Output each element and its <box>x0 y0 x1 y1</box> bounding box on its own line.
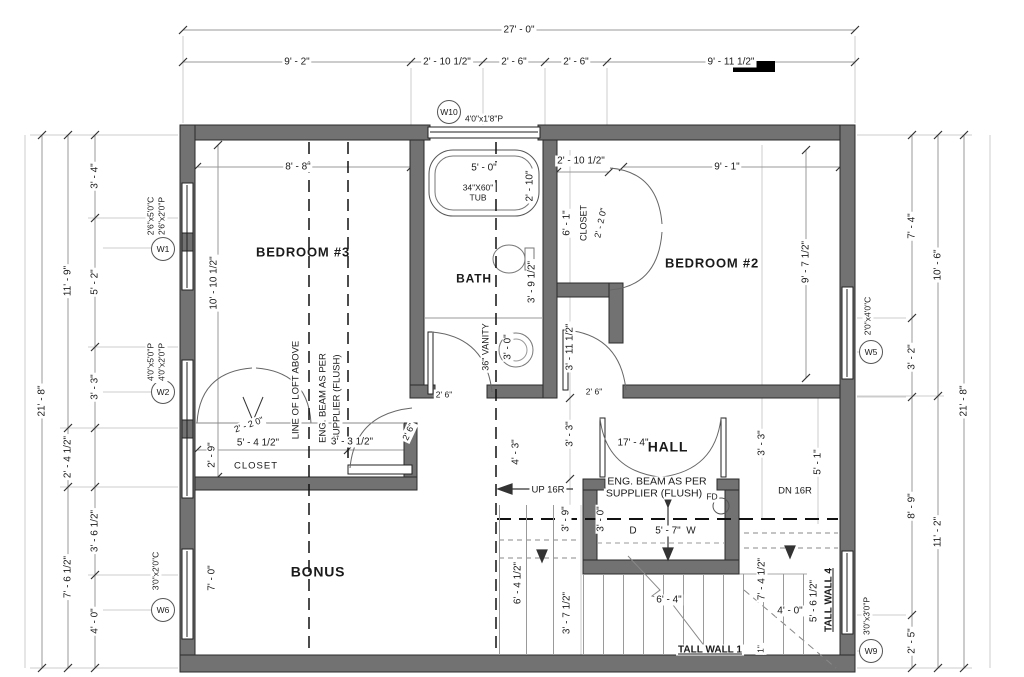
closet3-width-dim: 5' - 4 1/2" <box>235 438 281 449</box>
dn-arrow-head <box>785 546 795 558</box>
window-w2-size-1: 4'0"x5'0"P <box>146 341 157 383</box>
closet2-label: CLOSET <box>579 203 590 243</box>
bedroom3-width-dim: 8' - 8" <box>283 162 312 173</box>
closet3-label: CLOSET <box>232 461 280 472</box>
dim-top-s1: 9' - 2" <box>282 57 311 68</box>
dim-left-i2: 5' - 2" <box>90 267 101 296</box>
hall-door-leaf-left <box>600 418 605 477</box>
window-w2-size-2: 4'0"x2'0"P <box>157 341 168 383</box>
wall-closet2-pillar <box>609 283 623 343</box>
bedroom3-door-leaf <box>348 465 412 474</box>
hall-door-leaf-right <box>721 418 726 477</box>
beam-note-line1: ENG. BEAM AS PER <box>318 351 329 445</box>
wall-laundry-bottom <box>583 560 739 574</box>
window-w9-size: 3'0"x3'0"P <box>862 595 873 637</box>
tub-width-dim: 5' - 0" <box>469 163 498 174</box>
window-tag-w6: W6 <box>151 598 175 622</box>
bedroom2-door-size: 2' 6" <box>584 387 604 398</box>
closet2-depth-dim: 6' - 1" <box>562 208 573 237</box>
bonus-dim: 7' - 0" <box>207 563 218 592</box>
dim-left-i1: 3' - 4" <box>90 161 101 190</box>
closet3-door-arc-left <box>197 368 252 423</box>
dim-left-i4: 3' - 6 1/2" <box>90 508 101 554</box>
window-tag-w9: W9 <box>859 639 883 663</box>
hall-dim-5: 5' - 1" <box>813 447 824 476</box>
window-w5-size: 2'0"x4'0"C <box>863 295 874 338</box>
floor-drain-label: FD <box>704 492 719 503</box>
wall-top-left <box>180 125 430 140</box>
closet3-depth-dim: 2' - 9" <box>207 440 218 469</box>
dim-left-m1: 11' - 9" <box>63 264 74 298</box>
wall-bed3-bath <box>410 140 424 398</box>
stair-dim-5: 4' - 0" <box>775 606 804 617</box>
dim-right-i3: 8' - 9" <box>907 491 918 520</box>
hall-dim-2: 3' - 3" <box>565 419 576 448</box>
stair-treads-main <box>583 574 807 655</box>
stair-dim-4: 7' - 4 1/2" <box>757 556 768 602</box>
sink-dim: 3' - 0" <box>503 332 514 361</box>
closet3-right-dim: 3' - 3 1/2" <box>329 437 375 448</box>
floor-plan-sheet: 27' - 0" 9' - 2" 2' - 10 1/2" 2' - 6" 2'… <box>0 0 1024 677</box>
tub-label: TUB <box>468 193 489 204</box>
dim-left-total: 21' - 8" <box>37 383 48 418</box>
hall-dim-4: 3' - 3" <box>757 428 768 457</box>
dryer-label: D <box>627 526 638 537</box>
bath-door-leaf <box>428 332 433 394</box>
dim-right-m2: 11' - 2" <box>933 515 944 549</box>
toilet-dim: 3' - 9 1/2" <box>527 259 538 305</box>
dim-top-overall: 27' - 0" <box>501 25 536 36</box>
dim-left-i5: 4' - 0" <box>90 606 101 635</box>
window-tag-w5: W5 <box>859 340 883 364</box>
tall-wall-4-label: TALL WALL 4 <box>824 566 835 634</box>
bedroom2-width-dim: 9' - 1" <box>712 162 741 173</box>
bedroom2-depth-dim: 9' - 7 1/2" <box>801 239 812 285</box>
hall-dim-3: 3' - 11 1/2" <box>565 322 576 373</box>
stair-dim-one: 1" <box>756 643 767 655</box>
dim-right-i1: 7' - 4" <box>907 211 918 240</box>
dim-right-total: 21' - 8" <box>959 383 970 418</box>
window-w1-size-2: 2'6"x2'0"P <box>157 195 168 237</box>
dim-top-s5: 9' - 11 1/2" <box>706 57 757 68</box>
dim-left-m3: 7' - 6 1/2" <box>63 554 74 600</box>
up-arrow-head <box>498 484 512 494</box>
closet2-bifold-arc-top <box>610 168 662 224</box>
laundry-beam-note-2: SUPPLIER (FLUSH) <box>604 489 704 500</box>
dim-top-s2: 2' - 10 1/2" <box>421 57 473 68</box>
tub-depth-dim: 2' - 10" <box>525 168 536 203</box>
closet2-bifold-arc-bottom <box>610 232 662 290</box>
bedroom2-label: BEDROOM #2 <box>663 258 761 269</box>
dim-left-i3: 3' - 3" <box>90 372 101 401</box>
window-tag-w2: W2 <box>151 380 175 404</box>
dim-top-s3: 2' - 6" <box>499 57 528 68</box>
bath-label: BATH <box>454 274 494 285</box>
wall-bottom <box>180 655 855 672</box>
closet2-width-dim: 2' - 10 1/2" <box>555 156 607 167</box>
bonus-label: BONUS <box>289 567 348 578</box>
toilet-bowl <box>493 245 525 273</box>
wall-bed2-bottom <box>623 385 840 398</box>
window-w6-size: 3'0"x2'0"C <box>151 550 162 593</box>
wall-laundry-jamb-right <box>717 479 739 490</box>
loft-line-note: LINE OF LOFT ABOVE <box>291 339 302 442</box>
washer-label: W <box>684 526 697 537</box>
wall-laundry-jamb-left <box>583 479 605 490</box>
door-arcs <box>195 168 721 477</box>
vanity-note: 36" VANITY <box>481 321 492 373</box>
beam-note-line2: SUPPLIER (FLUSH) <box>332 352 343 443</box>
dn-run-label: DN 16R <box>776 486 814 497</box>
up-run-label: UP 16R <box>529 485 566 496</box>
dim-right-i4: 2' - 5" <box>907 626 918 655</box>
hall-label: HALL <box>646 442 691 453</box>
window-w10-size: 4'0"x1'8"P <box>463 114 505 125</box>
stair-dim-6: 5' - 6 1/2" <box>809 578 820 624</box>
stair-dim-1: 6' - 4 1/2" <box>513 560 524 606</box>
stair-dim-2: 3' - 7 1/2" <box>562 590 573 636</box>
wall-bath-closet <box>543 140 557 398</box>
laundry-beam-note-1: ENG. BEAM AS PER <box>605 477 708 488</box>
dim-top-s4: 2' - 6" <box>561 57 590 68</box>
stair-dim-3: 6' - 4" <box>654 595 683 606</box>
hall-dim-1: 4' - 3" <box>511 437 522 466</box>
dim-right-m1: 10' - 6" <box>933 247 944 282</box>
window-w1-size-1: 2'6"x5'0"C <box>146 195 157 238</box>
dim-right-i2: 3' - 2" <box>907 342 918 371</box>
laundry-arrow-head-2 <box>663 548 673 560</box>
window-tag-w1: W1 <box>151 237 175 261</box>
wall-top-right <box>538 125 855 140</box>
closet3-door-arc-right <box>256 368 311 423</box>
tall-wall-1-label: TALL WALL 1 <box>676 645 744 656</box>
bedroom3-depth-dim: 10' - 10 1/2" <box>209 254 220 311</box>
wall-closet3-bottom <box>195 477 417 490</box>
window-tag-w10: W10 <box>437 100 461 124</box>
laundry-width-dim: 5' - 7" <box>653 526 682 537</box>
dim-left-m2: 2' - 4 1/2" <box>63 434 74 480</box>
hall-dim-6: 3' - 9" <box>561 504 572 533</box>
bath-door-size: 2' 6" <box>434 390 454 401</box>
bedroom3-label: BEDROOM #3 <box>254 247 352 258</box>
laundry-depth-dim: 3' - 0" <box>596 504 607 533</box>
